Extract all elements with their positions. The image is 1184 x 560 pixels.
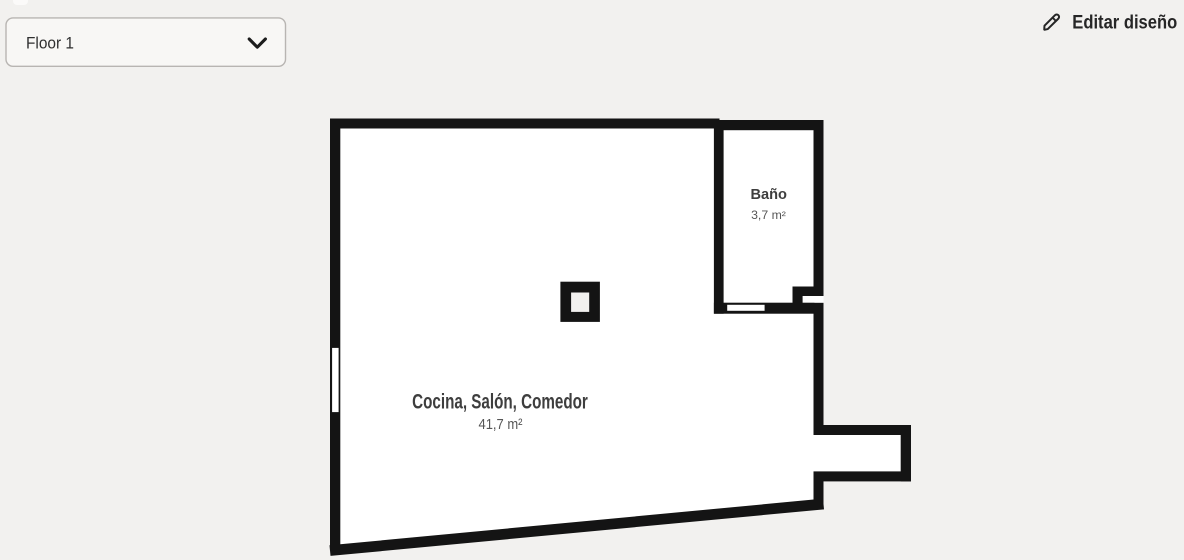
svg-text:Baño: Baño [750, 186, 787, 203]
svg-text:Cocina, Salón, Comedor: Cocina, Salón, Comedor [412, 390, 588, 413]
svg-text:3,7 m²: 3,7 m² [751, 210, 786, 222]
svg-text:Editar diseño: Editar diseño [1072, 13, 1177, 34]
svg-text:Floor 1: Floor 1 [26, 34, 74, 53]
svg-text:41,7 m²: 41,7 m² [479, 416, 523, 433]
